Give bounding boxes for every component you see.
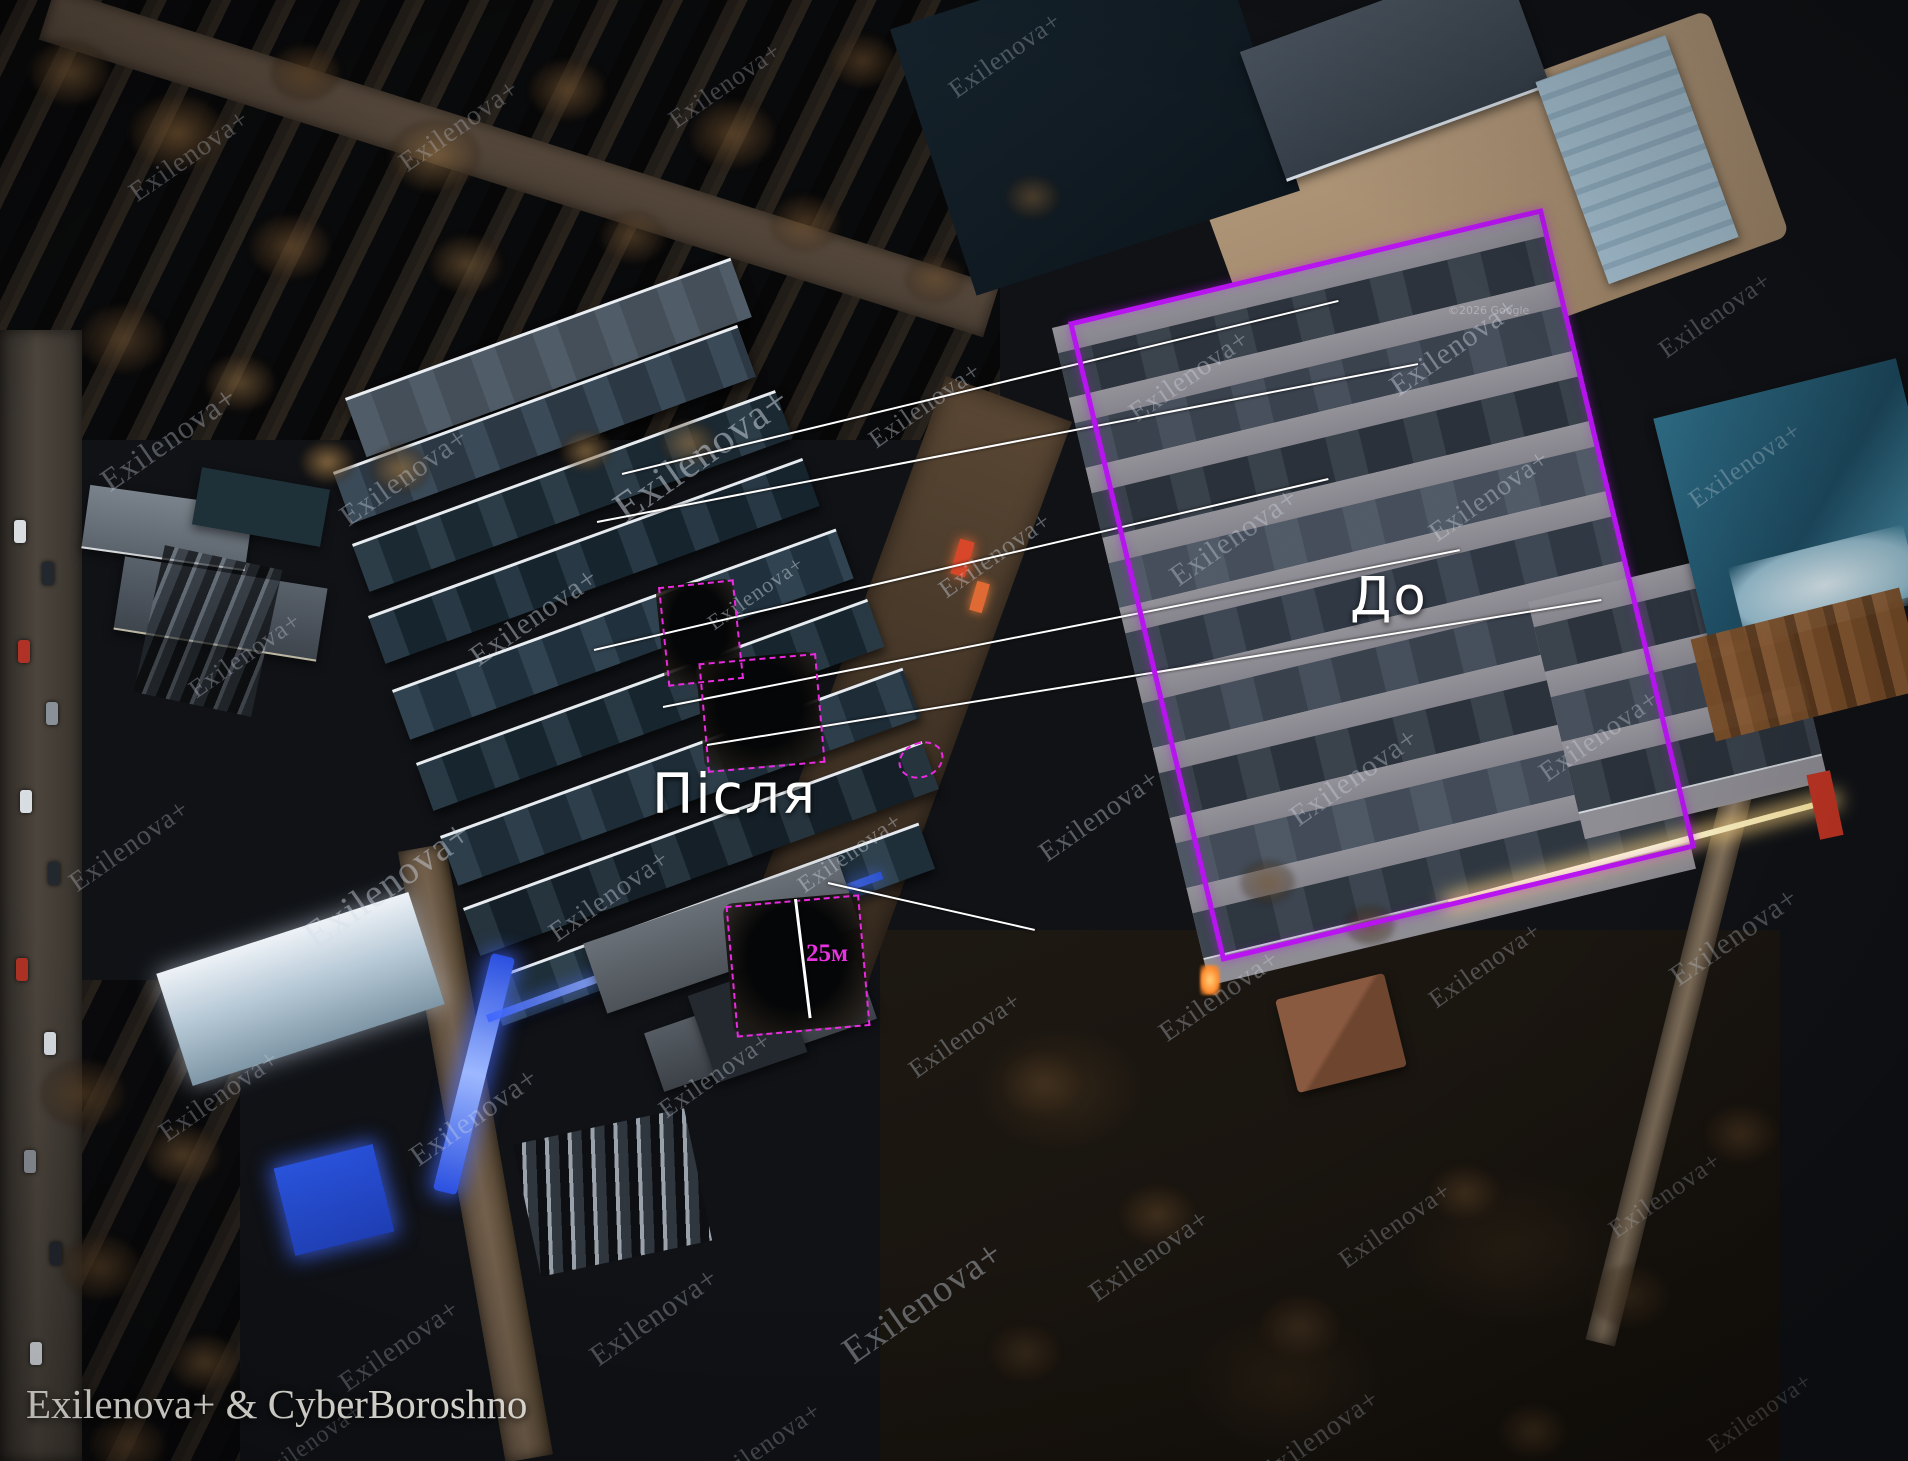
tree-canopy [80,305,165,373]
parked-car [48,862,60,885]
tree-canopy [990,1325,1060,1381]
tree-canopy [1000,1050,1085,1118]
red-container-right [1806,770,1843,840]
parking-lot-top-right [1147,34,1303,246]
parked-car [14,520,26,543]
watermark-text: Exilenova+ [1033,763,1165,869]
tree-canopy [270,45,340,101]
watermark-text: Exilenova+ [1653,265,1777,364]
parked-car [20,790,32,813]
measurement-label: 25м [806,940,848,968]
annotated-satellite-image: Exilenova+Exilenova+Exilenova+Exilenova+… [0,0,1908,1461]
parked-car [16,958,28,981]
label-after: Після [652,762,817,826]
damage-marker-box-2 [698,653,825,773]
tree-canopy [40,1060,125,1128]
parked-car [30,1342,42,1365]
label-before: До [1350,566,1428,627]
parked-car [46,702,58,725]
watermark-text: Exilenova+ [63,793,195,899]
tree-canopy [905,255,965,303]
tree-canopy [30,40,110,104]
parked-car [18,640,30,663]
watermark-text: Exilenova+ [584,1260,725,1373]
parked-car [24,1150,36,1173]
tree-canopy [530,60,605,120]
parked-car [44,1032,56,1055]
parked-car [50,1242,62,1265]
tree-canopy [300,440,355,484]
tree-canopy [770,195,840,251]
blue-canopy-bottom-left [274,1144,395,1256]
parked-car [42,562,54,585]
tree-canopy [1005,175,1060,219]
parking-lot-bottom-center [513,1108,712,1276]
tree-canopy [600,210,666,263]
credit-text: Exilenova+ & CyberBoroshno [26,1380,527,1428]
tree-canopy [60,1235,140,1299]
tree-canopy [1500,1405,1566,1458]
tree-canopy [830,35,895,87]
imagery-credit-text: ©2026 Google [1448,304,1529,317]
tree-canopy [1590,1265,1668,1327]
tree-canopy [250,215,330,279]
road-left-edge [0,330,82,1461]
tree-canopy [560,430,612,472]
watermark-text: Exilenova+ [703,1395,827,1461]
tree-canopy [430,235,502,293]
tree-canopy [1260,1295,1340,1359]
